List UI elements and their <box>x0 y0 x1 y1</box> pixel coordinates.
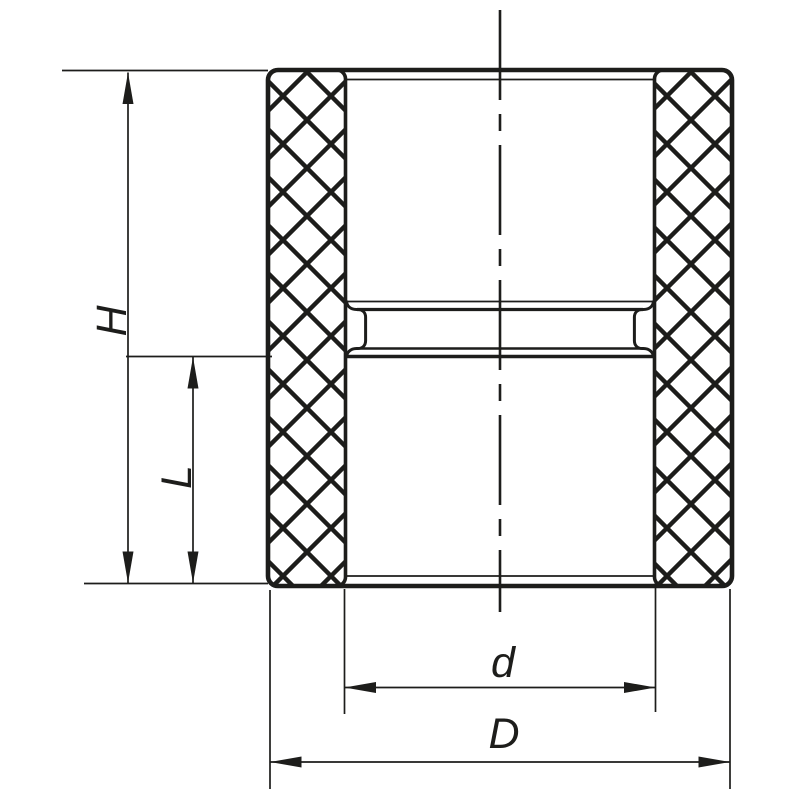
dimension-d-label: d <box>491 639 517 687</box>
dimension-l-label: L <box>153 465 201 489</box>
dd-arrow-right-icon <box>699 757 731 768</box>
dimension-h-label: H <box>88 305 136 337</box>
d-arrow-right-icon <box>624 682 656 693</box>
dimension-d-outer <box>270 589 730 789</box>
h-arrow-up-icon <box>123 73 134 105</box>
h-arrow-down-icon <box>123 552 134 584</box>
l-arrow-up-icon <box>188 357 199 389</box>
knurl-band-left <box>268 70 346 586</box>
coupling-technical-drawing: H L d D <box>0 0 800 800</box>
knurl-band-right <box>655 70 733 586</box>
dimension-outer-d-label: D <box>488 710 519 758</box>
d-arrow-left-icon <box>345 682 377 693</box>
dd-arrow-left-icon <box>270 757 302 768</box>
l-arrow-down-icon <box>188 552 199 584</box>
drawing-canvas: H L d D <box>0 0 800 800</box>
